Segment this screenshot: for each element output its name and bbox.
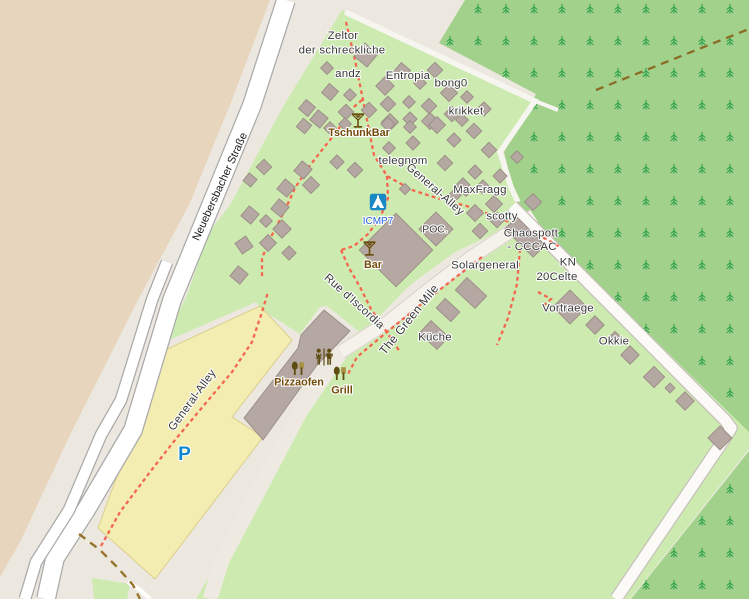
svg-text:scotty: scotty — [486, 211, 517, 223]
svg-text:der schreckliche: der schreckliche — [299, 45, 386, 57]
svg-text:Solargeneral: Solargeneral — [451, 260, 519, 272]
svg-text:TschunkBar: TschunkBar — [328, 127, 390, 139]
svg-text:KN: KN — [560, 257, 576, 269]
svg-text:Vortraege: Vortraege — [542, 303, 594, 315]
svg-text:20Celte: 20Celte — [536, 271, 577, 283]
svg-text:- CCCAC: - CCCAC — [507, 241, 556, 253]
svg-text:Entropia: Entropia — [386, 70, 431, 82]
svg-text:telegnom: telegnom — [378, 155, 427, 167]
svg-text:Bar: Bar — [364, 259, 383, 271]
svg-text:ICMP7: ICMP7 — [363, 216, 394, 227]
svg-text:Chaospott: Chaospott — [504, 228, 559, 240]
svg-text:Küche: Küche — [418, 332, 452, 344]
svg-text:MaxFragg: MaxFragg — [453, 184, 507, 196]
svg-text:Zeltor: Zeltor — [328, 30, 359, 42]
svg-text:POC.: POC. — [422, 225, 447, 236]
svg-text:Grill: Grill — [331, 385, 353, 397]
svg-text:andz: andz — [335, 68, 361, 80]
svg-text:Pizzaofen: Pizzaofen — [274, 377, 324, 389]
svg-text:P: P — [178, 444, 191, 465]
svg-text:bong0: bong0 — [434, 78, 467, 90]
svg-text:Okkie: Okkie — [599, 336, 630, 348]
svg-text:krikket: krikket — [449, 106, 484, 118]
